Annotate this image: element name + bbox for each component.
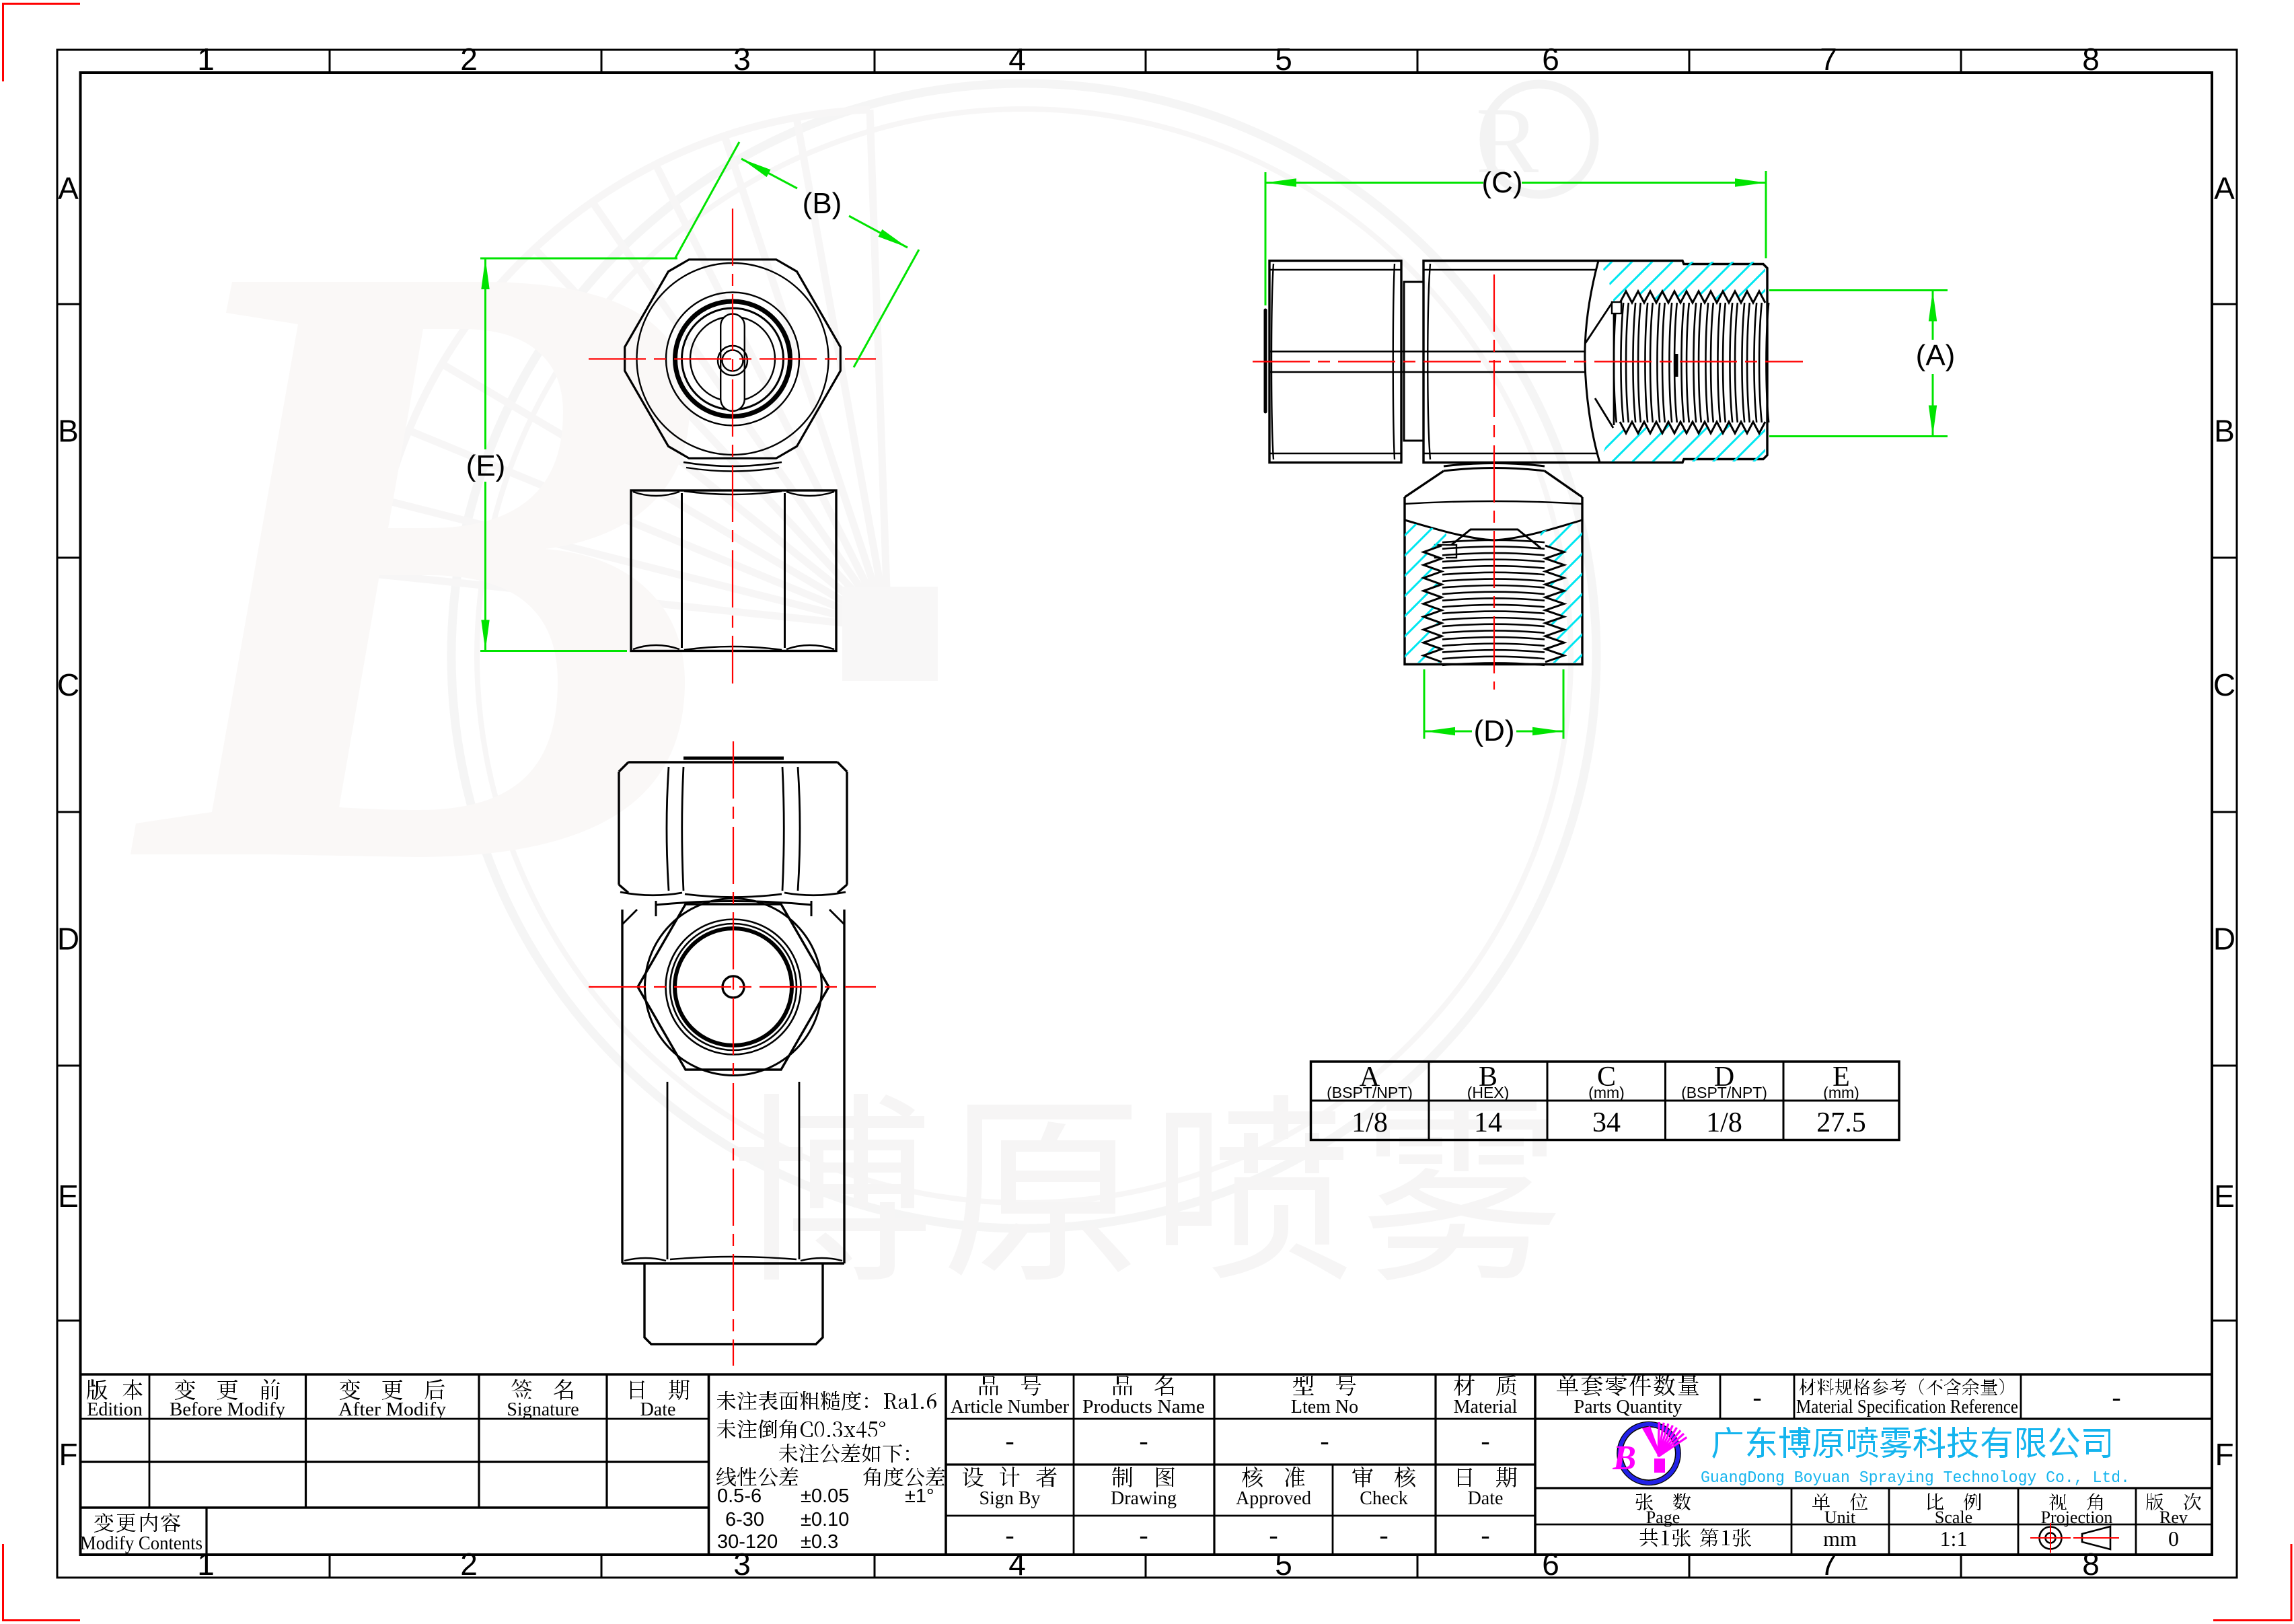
svg-text:0.5-6: 0.5-6 — [717, 1485, 762, 1507]
svg-text:(mm): (mm) — [1823, 1084, 1859, 1101]
svg-text:Material Specification Referen: Material Specification Reference — [1796, 1397, 2018, 1417]
svg-text:Unit: Unit — [1824, 1508, 1856, 1527]
svg-text:Page: Page — [1646, 1508, 1680, 1527]
svg-text:C: C — [2213, 667, 2235, 702]
svg-text:(C): (C) — [1481, 166, 1522, 199]
svg-text:8: 8 — [2082, 1547, 2100, 1582]
svg-text:Ltem No: Ltem No — [1291, 1397, 1358, 1417]
svg-text:(BSPT/NPT): (BSPT/NPT) — [1681, 1084, 1767, 1101]
svg-text:-: - — [1481, 1520, 1489, 1550]
svg-text:2: 2 — [460, 42, 478, 77]
svg-text:7: 7 — [1820, 42, 1837, 77]
svg-text:Approved: Approved — [1236, 1488, 1311, 1509]
svg-text:(D): (D) — [1473, 714, 1514, 747]
svg-text:Products Name: Products Name — [1082, 1397, 1205, 1417]
svg-text:Material: Material — [1454, 1397, 1518, 1417]
svg-text:±0.10: ±0.10 — [801, 1509, 849, 1530]
svg-text:(A): (A) — [1916, 339, 1956, 372]
svg-text:mm: mm — [1823, 1526, 1857, 1551]
svg-text:±0.3: ±0.3 — [801, 1531, 838, 1553]
svg-text:4: 4 — [1008, 42, 1026, 77]
svg-text:3: 3 — [733, 42, 751, 77]
svg-text:-: - — [1379, 1520, 1388, 1550]
svg-text:0: 0 — [2168, 1526, 2179, 1551]
svg-text:Modify Contents: Modify Contents — [80, 1533, 202, 1554]
svg-text:Date: Date — [1468, 1488, 1504, 1509]
svg-text:-: - — [1139, 1520, 1148, 1550]
svg-text:30-120: 30-120 — [717, 1531, 778, 1553]
svg-text:±0.05: ±0.05 — [801, 1485, 849, 1507]
svg-text:±1°: ±1° — [905, 1485, 934, 1507]
svg-text:-: - — [1005, 1520, 1014, 1550]
svg-text:E: E — [58, 1179, 79, 1214]
svg-text:-: - — [1269, 1520, 1278, 1550]
svg-text:Date: Date — [640, 1399, 676, 1420]
svg-text:Parts Quantity: Parts Quantity — [1574, 1397, 1682, 1417]
svg-text:F: F — [59, 1437, 77, 1472]
svg-text:(E): (E) — [466, 449, 506, 482]
svg-text:Check: Check — [1360, 1488, 1408, 1509]
svg-text:6-30: 6-30 — [725, 1509, 764, 1530]
svg-text:1:1: 1:1 — [1940, 1526, 1968, 1551]
svg-text:7: 7 — [1820, 1547, 1837, 1582]
svg-text:Scale: Scale — [1935, 1508, 1972, 1527]
svg-text:1/8: 1/8 — [1352, 1107, 1388, 1138]
svg-text:4: 4 — [1008, 1547, 1026, 1582]
svg-text:2: 2 — [460, 1547, 478, 1582]
svg-text:14: 14 — [1474, 1107, 1502, 1138]
svg-text:Edition: Edition — [87, 1399, 142, 1420]
svg-text:-: - — [1752, 1382, 1761, 1412]
svg-text:6: 6 — [1542, 42, 1559, 77]
svg-text:D: D — [2213, 922, 2235, 957]
svg-text:-: - — [1481, 1426, 1489, 1456]
svg-text:D: D — [57, 922, 79, 957]
svg-text:A: A — [58, 171, 79, 206]
svg-text:1/8: 1/8 — [1706, 1107, 1742, 1138]
svg-text:Rev: Rev — [2159, 1508, 2188, 1527]
svg-text:E: E — [2214, 1179, 2235, 1214]
svg-text:(BSPT/NPT): (BSPT/NPT) — [1327, 1084, 1413, 1101]
svg-text:(mm): (mm) — [1588, 1084, 1625, 1101]
svg-text:C: C — [57, 667, 79, 702]
svg-text:B: B — [58, 414, 79, 449]
svg-text:6: 6 — [1542, 1547, 1559, 1582]
svg-text:27.5: 27.5 — [1816, 1107, 1866, 1138]
svg-text:5: 5 — [1275, 42, 1292, 77]
svg-text:-: - — [1320, 1426, 1329, 1456]
svg-text:1: 1 — [197, 42, 215, 77]
svg-text:Projection: Projection — [2041, 1508, 2113, 1527]
svg-text:Signature: Signature — [507, 1399, 579, 1420]
svg-text:-: - — [1005, 1426, 1014, 1456]
svg-text:-: - — [1139, 1426, 1148, 1456]
svg-text:5: 5 — [1275, 1547, 1292, 1582]
svg-text:Drawing: Drawing — [1111, 1488, 1177, 1509]
svg-text:A: A — [2214, 171, 2235, 206]
svg-text:34: 34 — [1592, 1107, 1621, 1138]
svg-text:(B): (B) — [803, 187, 842, 220]
svg-text:8: 8 — [2082, 42, 2100, 77]
svg-text:Article Number: Article Number — [951, 1397, 1070, 1417]
svg-text:F: F — [2215, 1437, 2233, 1472]
svg-text:After Modify: After Modify — [338, 1399, 446, 1420]
svg-text:Before Modify: Before Modify — [170, 1399, 285, 1420]
svg-text:GuangDong Boyuan Spraying Tech: GuangDong Boyuan Spraying Technology Co.… — [1701, 1469, 2130, 1487]
svg-text:-: - — [2112, 1382, 2120, 1412]
svg-text:B: B — [2214, 414, 2235, 449]
svg-text:(HEX): (HEX) — [1467, 1084, 1510, 1101]
svg-text:Sign By: Sign By — [979, 1488, 1040, 1509]
